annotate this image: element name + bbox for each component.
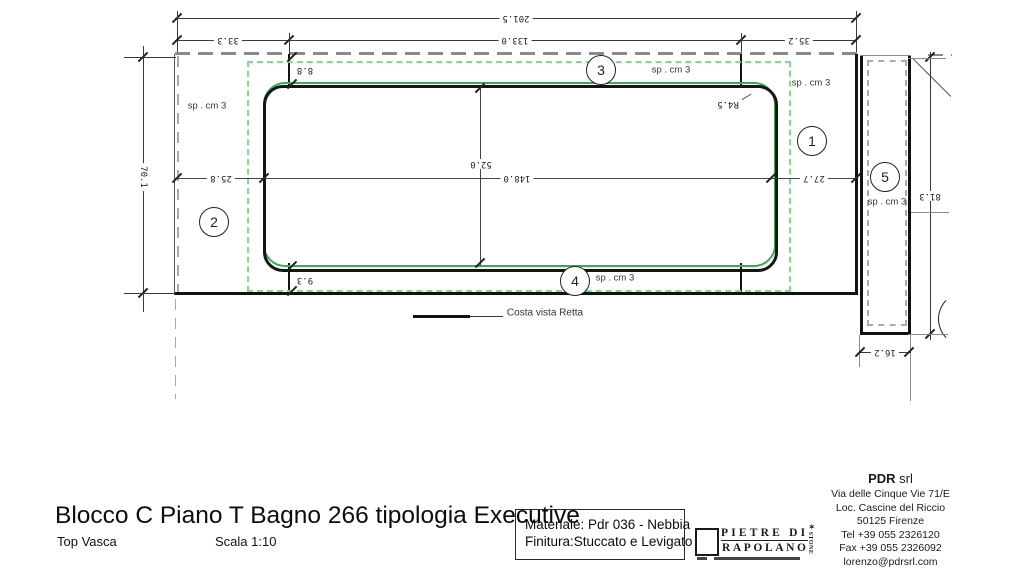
extension-line [911, 212, 949, 213]
logo-vertical-text: STONE [807, 532, 813, 555]
company-address-3: 50125 Firenze [818, 515, 963, 529]
thickness-label-bottom: sp . cm 3 [596, 273, 635, 284]
company-email: lorenzo@pdrsrl.com [818, 556, 963, 570]
legend-line-sample-thin [470, 316, 503, 317]
drawing-title: Blocco C Piano T Bagno 266 tipologia Exe… [55, 502, 580, 530]
dim-bottom-margin: 9.3 [294, 275, 316, 285]
thickness-label-side: sp . cm 3 [868, 197, 907, 208]
drawing-sheet: 201.5 33.3 133.0 35.2 70.1 25.8 148.0 27… [0, 0, 1024, 576]
extension-line [289, 33, 290, 54]
balloon-4: 4 [560, 266, 590, 296]
dim-top-margin: 8.8 [294, 65, 316, 75]
thickness-label-right: sp . cm 3 [792, 78, 831, 89]
logo-line2: RAPOLANO [722, 542, 809, 554]
side-panel-left-edge [860, 55, 863, 335]
extension-line [908, 334, 948, 335]
dim-side-width: 16.2 [871, 347, 899, 357]
dim-right-margin: 27.7 [800, 173, 828, 183]
company-address-1: Via delle Cinque Vie 71/E [818, 488, 963, 502]
break-line-diagonal [912, 58, 951, 97]
dim-slab-height: 70.1 [138, 163, 148, 191]
company-contact-block: PDR srl Via delle Cinque Vie 71/E Loc. C… [818, 471, 963, 570]
logo-underline-long [714, 557, 800, 560]
extension-line [124, 57, 176, 58]
thickness-label-left: sp . cm 3 [188, 101, 227, 112]
dim-segment-middle: 133.0 [498, 35, 531, 45]
extension-line [124, 293, 176, 294]
company-name: PDR srl [818, 471, 963, 486]
vertical-centerline [480, 86, 481, 265]
logo-star-icon: ✶ [808, 522, 816, 533]
dim-basin-width: 148.0 [500, 173, 533, 183]
legend-costa-vista-label: Costa vista Retta [507, 308, 583, 319]
company-address-2: Loc. Cascine del Riccio [818, 502, 963, 516]
dim-side-height: 81.3 [916, 191, 944, 201]
side-panel-bottom-edge [860, 332, 911, 335]
balloon-2: 2 [199, 207, 229, 237]
side-panel-hidden-profile [867, 60, 907, 326]
logo-line1: PIETRE DI [721, 527, 808, 541]
extension-line [741, 33, 742, 54]
finish-line: Finitura:Stuccato e Levigato [525, 534, 684, 551]
company-tel: Tel +39 055 2326120 [818, 529, 963, 543]
dim-segment-left: 33.3 [214, 35, 242, 45]
company-name-bold: PDR [868, 471, 895, 486]
company-fax: Fax +39 055 2326092 [818, 542, 963, 556]
side-panel-top-edge [860, 55, 911, 56]
balloon-1: 1 [797, 126, 827, 156]
slab-bottom-edge-costa-vista [175, 292, 858, 295]
dim-corner-radius: R4.5 [714, 99, 742, 109]
material-box: Materiale: Pdr 036 - Nebbia Finitura:Stu… [515, 509, 685, 560]
extension-line [856, 11, 857, 54]
extension-line [910, 335, 911, 401]
drawing-subtitle: Top Vasca [57, 534, 117, 549]
balloon-5: 5 [870, 162, 900, 192]
thickness-label-top: sp . cm 3 [652, 65, 691, 76]
material-line: Materiale: Pdr 036 - Nebbia [525, 517, 684, 534]
logo-underline-short [697, 557, 707, 560]
extension-line [908, 58, 946, 59]
company-name-suffix: srl [896, 471, 913, 486]
slab-left-edge [174, 54, 175, 295]
dim-segment-right: 35.2 [785, 35, 813, 45]
legend-line-sample-thick [413, 315, 470, 318]
side-panel-right-edge [908, 55, 911, 335]
projection-line-hidden [175, 299, 176, 399]
detail-arc [938, 292, 992, 346]
dim-basin-height: 52.0 [467, 159, 495, 169]
extension-line [177, 11, 178, 54]
dim-left-margin: 25.8 [207, 173, 235, 183]
dim-total-width: 201.5 [499, 13, 532, 23]
slab-top-edge-hidden [175, 52, 858, 55]
balloon-3: 3 [586, 55, 616, 85]
logo-square-icon [695, 528, 719, 556]
drawing-scale: Scala 1:10 [215, 534, 276, 549]
